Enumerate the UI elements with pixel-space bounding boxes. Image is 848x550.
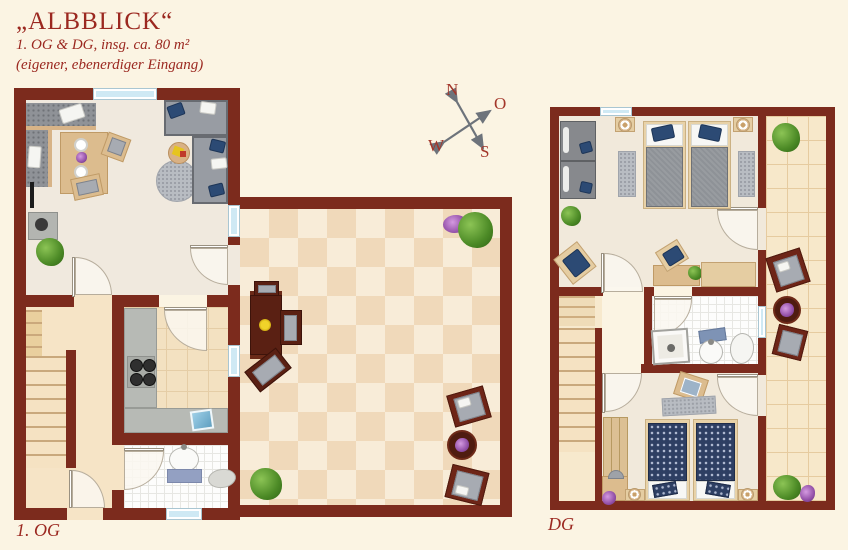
plant [36,238,64,266]
floor-label-dg: DG [548,514,574,535]
wardrobe [603,417,628,477]
desk-panel [680,378,702,398]
chair-cushion [773,255,805,287]
plate [74,138,88,152]
faucet-icon [708,339,714,345]
entrance-opening [67,508,103,520]
window [758,306,766,338]
sofa-pillow [199,101,217,115]
wall-segment [228,237,240,245]
wardrobe-divider [611,418,612,476]
table-flowers [455,438,469,452]
chair-cushion [284,315,297,341]
chair-cushion [107,137,126,156]
chair-cushion [76,179,99,196]
bedside-rug [738,151,755,197]
window [228,345,240,377]
desk-plant [688,266,702,280]
bedside-rug [618,151,636,197]
terrace-chair [280,310,302,345]
bed-blanket [646,147,683,207]
wall-segment [112,490,124,508]
wall-segment [641,364,758,373]
plant [561,206,581,226]
folded-item [579,141,593,155]
wall-segment [14,295,74,307]
wall-segment [14,508,67,520]
window [228,205,240,237]
burner-icon [130,359,143,372]
wall-segment [112,433,240,445]
floor-plan-sheet: „ALBBLICK“ 1. OG & DG, insg. ca. 80 m² (… [0,0,848,550]
door-opening [758,375,766,416]
window [166,508,202,520]
plant [250,468,282,500]
bed [645,419,690,501]
chair-cushion [778,330,804,356]
wall-segment [228,377,240,520]
wall-segment [644,287,654,296]
flower-plant [800,485,815,502]
wall-segment [758,338,766,375]
wardrobe-divider [619,418,620,476]
stair-rail-wall [66,350,76,468]
plant [772,123,800,152]
wall-segment [228,88,240,205]
wall-segment [240,197,512,209]
floor-plan-og [14,88,512,520]
wall-segment [559,287,603,296]
floor-label-og: 1. OG [16,520,60,541]
wall-segment [240,505,512,517]
chair-cushion [562,248,591,278]
bed [643,121,686,209]
wall-segment [112,295,159,307]
wall-segment [632,107,835,116]
window [600,107,632,116]
hall-shelf [26,310,42,356]
terrace-chair [254,281,279,296]
bed [693,419,738,501]
terrace-door-opening [228,245,240,285]
wall-segment [758,416,766,501]
wall-segment [550,501,835,510]
wall-radiator [30,182,34,208]
kitchen-sink [190,409,215,432]
sofa-pillow [210,157,227,170]
window [93,88,157,100]
wardrobe-handle [563,127,569,153]
wall-segment [228,285,240,345]
rug [662,396,717,417]
chair-cushion [258,285,276,293]
faucet-icon [181,444,187,450]
table-flowers [780,303,794,317]
shower-drain-icon [667,344,676,353]
shower [651,328,690,365]
wardrobe-handle [563,166,569,192]
wall-segment [207,295,240,307]
staircase [26,356,66,468]
wall-segment [758,116,766,208]
floor-plan-dg [550,107,835,510]
wall-segment [826,107,835,510]
plan-title: „ALBBLICK“ [16,8,203,36]
wardrobe [560,121,596,199]
plant [773,475,801,500]
wall-segment [500,197,512,517]
red-item [180,151,186,157]
door-opening [758,208,766,250]
bath-mat [167,469,202,483]
pillow [27,146,42,169]
wall-segment [595,328,602,501]
title-block: „ALBBLICK“ 1. OG & DG, insg. ca. 80 m² (… [16,8,203,75]
sideboard [701,262,756,287]
stove-plate [35,218,48,231]
flower-plant [602,491,616,505]
desk-chair [608,470,624,479]
wardrobe-divider [561,160,595,162]
wall-segment [112,307,124,433]
plan-note: (eigener, ebenerdiger Eingang) [16,56,203,76]
wall-segment [692,287,758,296]
burner-icon [143,359,156,372]
burner-icon [130,373,143,386]
wall-segment [550,107,559,510]
staircase [559,328,595,452]
landing-pad [559,296,595,326]
table-flowers [76,152,87,163]
plan-subtitle: 1. OG & DG, insg. ca. 80 m² [16,36,203,56]
bed-blanket [696,423,735,481]
wood-stove [28,212,58,240]
lamp-icon [736,118,750,132]
yellow-flower [259,319,271,331]
folded-item [579,181,593,194]
lamp-icon [741,488,754,501]
burner-icon [143,373,156,386]
bed [688,121,731,209]
lamp-icon [628,488,641,501]
lamp-icon [618,118,632,132]
bed-blanket [691,147,728,207]
bed-blanket [648,423,687,481]
plant [458,212,493,248]
